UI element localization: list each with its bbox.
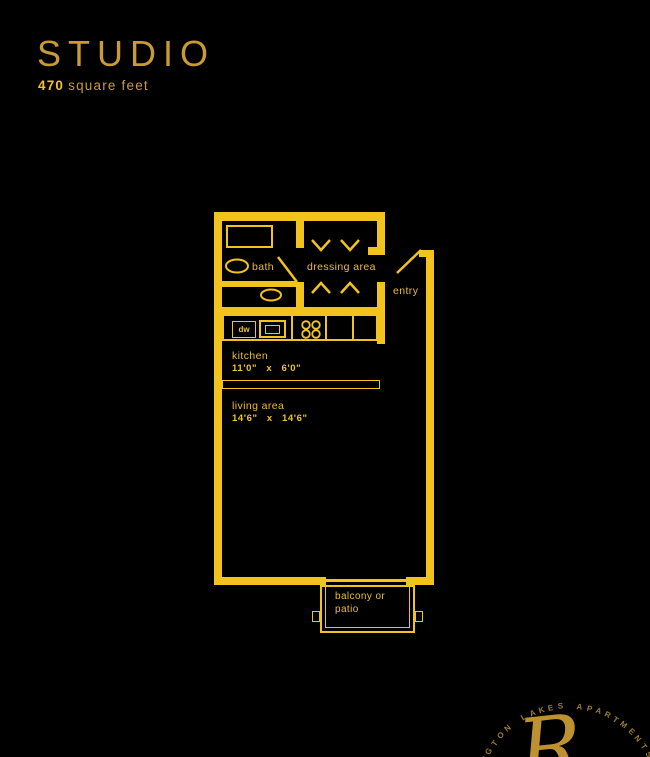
wall-right [426, 250, 434, 585]
logo-arc-letter: T [489, 737, 500, 747]
closet-rod-chevron-down [312, 240, 330, 250]
wall-kitchen-top [214, 307, 385, 314]
logo-arc-letter: P [586, 703, 594, 713]
wall-dressing-right-upper [377, 221, 385, 247]
area-subtitle: 470square feet [38, 78, 149, 93]
entry-door-swing [397, 250, 421, 273]
logo-arc-letter: G [483, 745, 494, 756]
counter-divider-1 [291, 314, 293, 341]
closet-rod-chevron-up [312, 283, 330, 293]
area-value: 470 [38, 78, 64, 93]
counter-divider-3 [352, 314, 354, 341]
bathtub [226, 225, 273, 248]
wall-right-entry-lip [419, 250, 426, 257]
logo-arc-letter: S [644, 750, 650, 757]
logo-arc-letter: T [639, 742, 650, 752]
fixtures-overlay [0, 0, 650, 757]
logo-monogram-letter: R [514, 703, 587, 757]
label-dressing-area: dressing area [307, 261, 376, 274]
kitchen-bar-counter [222, 380, 380, 389]
bath-door-swing [278, 257, 297, 282]
logo-arc-letter: N [633, 733, 644, 744]
balcony-door-line [326, 579, 406, 582]
logo-arc-letter: R [603, 710, 613, 721]
area-unit: square feet [68, 78, 149, 93]
closet-rod-chevron-down [341, 240, 359, 250]
balcony-tab-left [312, 611, 320, 622]
toilet-oval [261, 290, 281, 301]
wall-bath-divider [222, 281, 296, 287]
wall-bath-dressing-upper [296, 221, 304, 248]
label-balcony-line1: balcony or [335, 591, 385, 604]
wall-dressing-right-cap [368, 247, 385, 255]
wall-left [214, 212, 222, 585]
wall-top [214, 212, 385, 221]
dims-living-area: 14'6" x 14'6" [232, 413, 308, 424]
label-balcony-line2: patio [335, 604, 385, 617]
logo-arc-letter: O [495, 729, 507, 740]
closet-rod-chevron-up [341, 283, 359, 293]
dishwasher-label: dw [232, 322, 256, 337]
kitchen-sink-inner [265, 325, 280, 334]
wall-bath-dressing-lower [296, 282, 304, 308]
bath-sink-oval [226, 260, 248, 273]
wall-bottom-left [214, 577, 326, 585]
label-balcony: balcony or patio [335, 591, 385, 616]
dims-kitchen: 11'0" x 6'0" [232, 363, 301, 374]
label-living-area: living area [232, 400, 284, 413]
label-kitchen: kitchen [232, 350, 268, 363]
balcony-tab-right [415, 611, 423, 622]
page-title: STUDIO [37, 36, 215, 72]
logo-arc-letter: A [594, 706, 603, 717]
floorplan-page: STUDIO 470square feet dw [0, 0, 650, 757]
label-bath: bath [252, 261, 274, 274]
counter-divider-2 [325, 314, 327, 341]
label-entry: entry [393, 285, 418, 298]
